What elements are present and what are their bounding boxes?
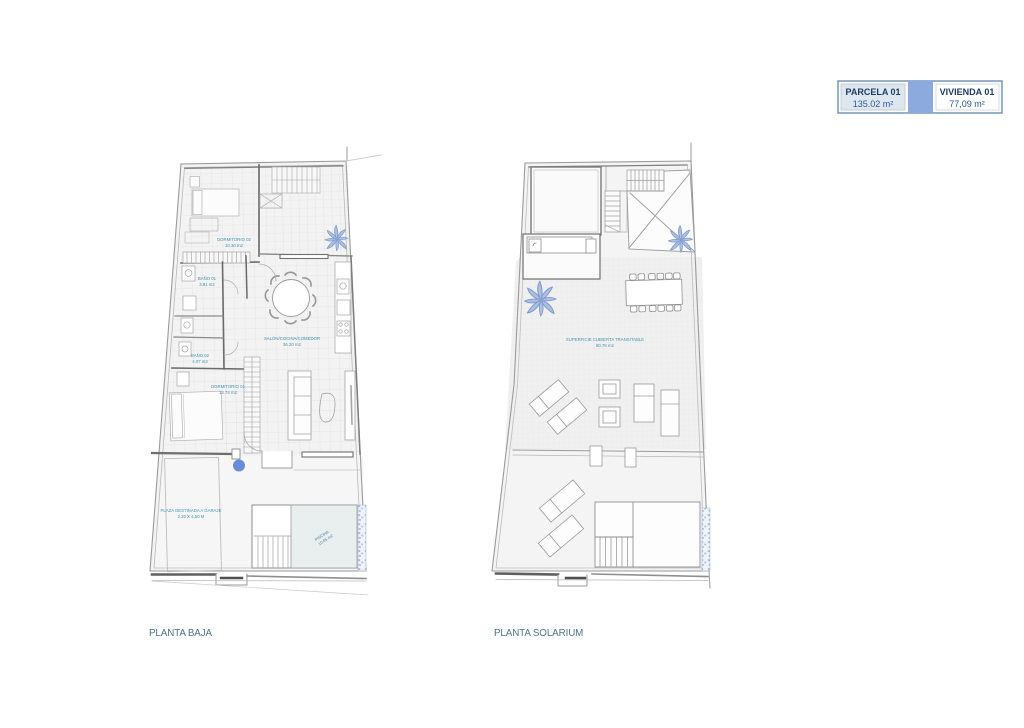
svg-text:SUPERFICIE CUBIERTA TRANSITABL: SUPERFICIE CUBIERTA TRANSITABLE: [566, 337, 644, 342]
svg-text:PLANTA BAJA: PLANTA BAJA: [149, 628, 213, 639]
svg-text:2,20 X 4,50 M: 2,20 X 4,50 M: [178, 514, 205, 519]
svg-text:SALÓN/COCINA/COMEDOR: SALÓN/COCINA/COMEDOR: [264, 336, 320, 341]
svg-text:BAÑO 02: BAÑO 02: [191, 353, 210, 358]
svg-text:DORMITORIO 01: DORMITORIO 01: [211, 384, 245, 389]
svg-text:PARCELA 01: PARCELA 01: [845, 87, 900, 97]
svg-text:DORMITORIO 02: DORMITORIO 02: [217, 237, 251, 242]
svg-text:PLAZA DESTINADA A GARAJE: PLAZA DESTINADA A GARAJE: [161, 508, 222, 513]
svg-text:PLANTA SOLARIUM: PLANTA SOLARIUM: [494, 628, 583, 639]
svg-text:BAÑO 01: BAÑO 01: [198, 276, 217, 281]
svg-text:135.02 m²: 135.02 m²: [853, 99, 894, 109]
svg-text:3.81 m2: 3.81 m2: [199, 282, 215, 287]
svg-text:77,09 m²: 77,09 m²: [949, 99, 985, 109]
svg-text:13.74 m2: 13.74 m2: [219, 390, 238, 395]
svg-text:4.07 m2: 4.07 m2: [192, 359, 208, 364]
svg-text:VIVIENDA 01: VIVIENDA 01: [940, 87, 995, 97]
svg-text:10.30 m2: 10.30 m2: [225, 243, 244, 248]
svg-text:80.76 m2: 80.76 m2: [596, 343, 615, 348]
svg-text:36.20 m2: 36.20 m2: [283, 342, 302, 347]
